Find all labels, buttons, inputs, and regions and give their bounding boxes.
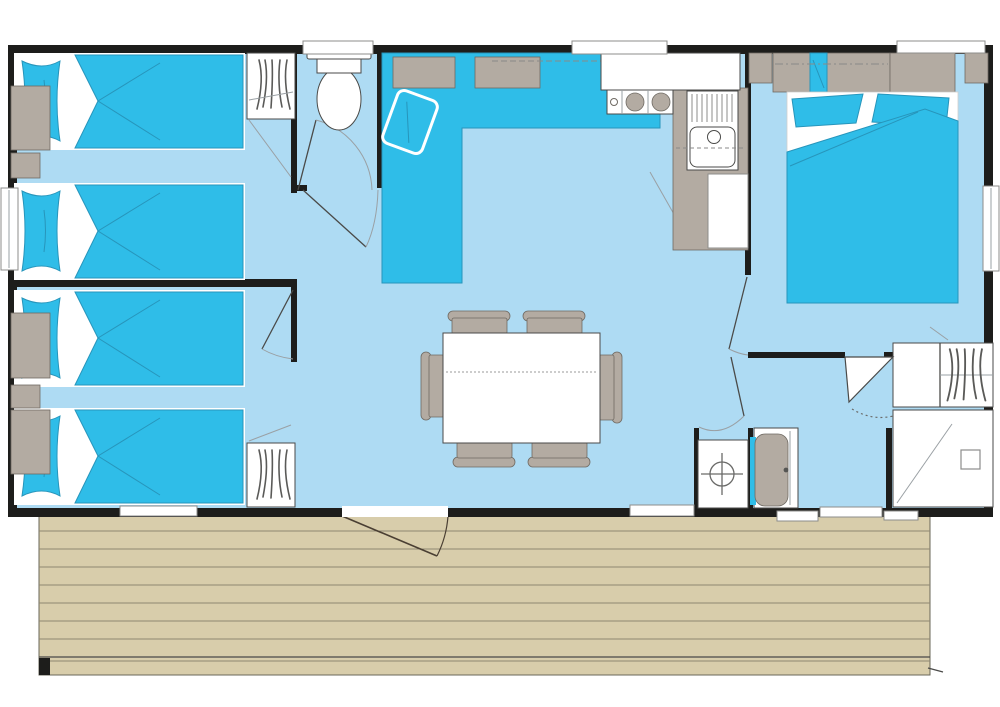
chair	[523, 311, 585, 334]
overhead-cabinet	[827, 53, 890, 92]
water-heater	[750, 428, 798, 508]
window-bottom-bedroom2	[120, 506, 197, 516]
wall-between-bedrooms	[8, 279, 297, 287]
nightstand	[11, 86, 50, 150]
sofa-shelf	[393, 57, 455, 88]
overhead-cabinet	[773, 53, 810, 92]
window-bottom-shower	[884, 511, 918, 520]
base-cabinet	[708, 174, 748, 248]
chair	[421, 352, 444, 420]
chair	[528, 442, 590, 467]
burner	[652, 93, 670, 111]
dining-table	[443, 333, 600, 443]
shower	[893, 410, 993, 507]
floor-plan	[0, 0, 1000, 707]
window-right-master	[983, 186, 999, 271]
window-bottom-living	[630, 505, 694, 516]
floor-plan-drawing	[0, 0, 1000, 707]
sink-unit	[676, 91, 746, 170]
burner	[626, 93, 644, 111]
overhead-cabinet	[890, 53, 955, 92]
deck-surface	[39, 514, 930, 675]
worktop	[601, 53, 740, 90]
deck-step-left	[39, 658, 50, 675]
wall-shower-left	[886, 428, 892, 510]
hob	[607, 90, 673, 114]
single-bed	[14, 183, 245, 280]
window-top-kitchen	[572, 41, 667, 54]
folded-towel	[810, 53, 827, 92]
washbasin-unit	[698, 440, 748, 508]
wall-master-bottom	[748, 352, 845, 358]
wall-bedroom2-hall	[291, 287, 297, 362]
pillow	[22, 191, 60, 271]
chair	[599, 352, 622, 423]
deck-terrace	[39, 514, 943, 675]
wall-wc-right	[377, 53, 382, 188]
entrance-door-opening	[342, 506, 448, 517]
sink-bowl	[690, 127, 735, 167]
window-left-bedroom1	[1, 188, 18, 270]
corner-cabinet	[749, 53, 772, 83]
double-bed	[787, 92, 958, 303]
window-bottom-washroom	[777, 511, 818, 521]
nightstand	[11, 313, 50, 378]
pillow	[792, 94, 863, 127]
sofa-shelf	[475, 57, 540, 88]
nightstand	[11, 385, 40, 408]
chair	[448, 311, 510, 334]
chair	[453, 442, 515, 467]
window-top-master	[897, 41, 985, 53]
window-bottom-bathroom	[820, 507, 882, 517]
window-top-wc	[303, 41, 373, 54]
nightstand	[11, 153, 40, 178]
nightstand	[11, 410, 50, 474]
corner-cabinet	[965, 53, 988, 83]
